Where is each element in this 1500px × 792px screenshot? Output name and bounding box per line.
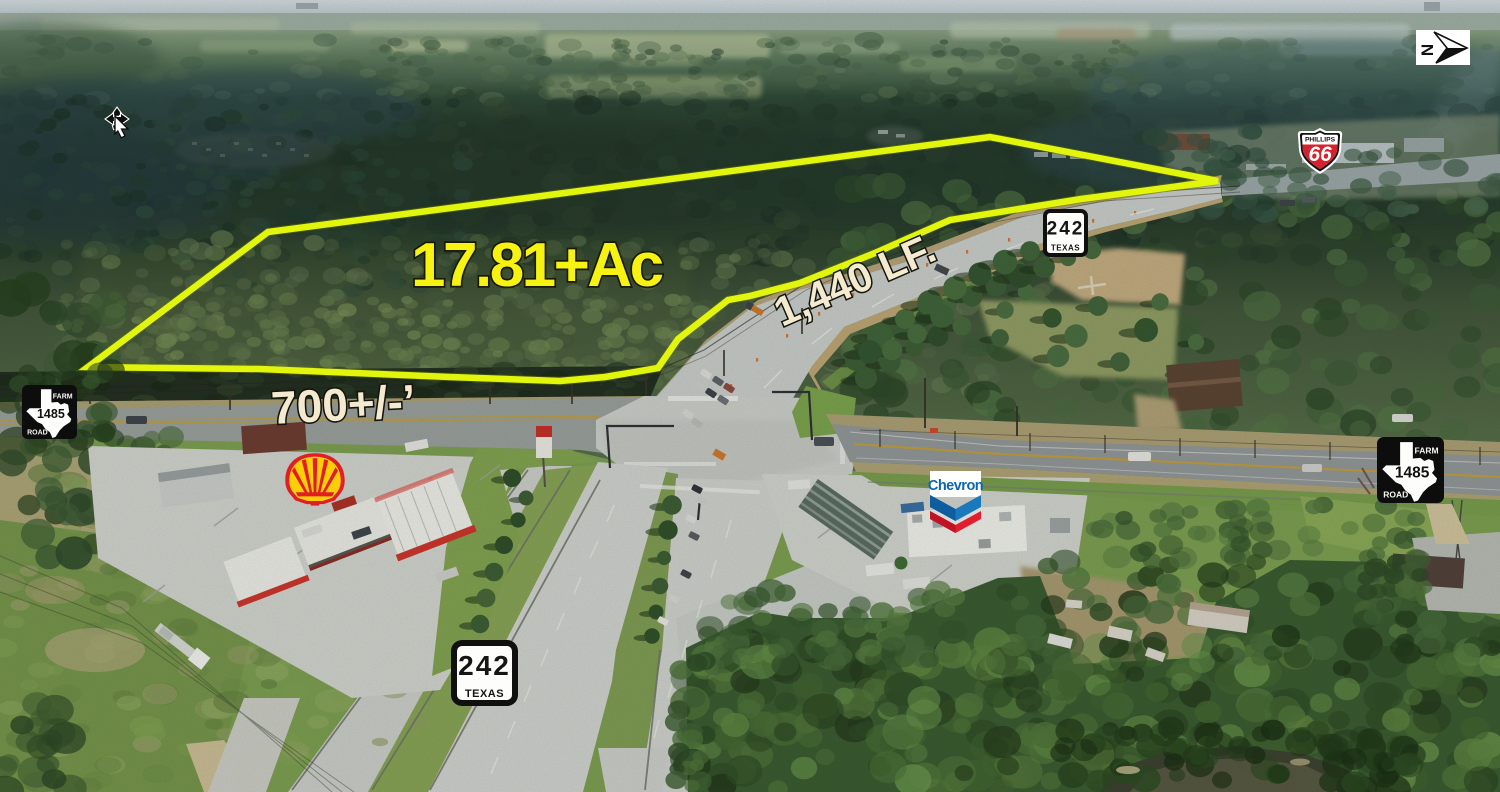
svg-text:ROAD: ROAD <box>1383 490 1408 500</box>
svg-text:700+/-’: 700+/-’ <box>270 374 417 433</box>
svg-text:Chevron: Chevron <box>928 478 983 494</box>
svg-text:N: N <box>1418 44 1437 56</box>
svg-text:1485: 1485 <box>1395 465 1430 482</box>
svg-text:66: 66 <box>1308 143 1332 166</box>
svg-text:242: 242 <box>1047 218 1085 239</box>
svg-text:1485: 1485 <box>37 407 65 421</box>
svg-text:TEXAS: TEXAS <box>1051 243 1080 252</box>
svg-text:ROAD: ROAD <box>27 430 48 437</box>
svg-text:TEXAS: TEXAS <box>465 688 504 700</box>
svg-text:242: 242 <box>458 650 511 681</box>
svg-text:17.81+Ac: 17.81+Ac <box>411 231 663 300</box>
svg-text:FARM: FARM <box>53 394 73 401</box>
svg-text:FARM: FARM <box>1415 446 1439 456</box>
